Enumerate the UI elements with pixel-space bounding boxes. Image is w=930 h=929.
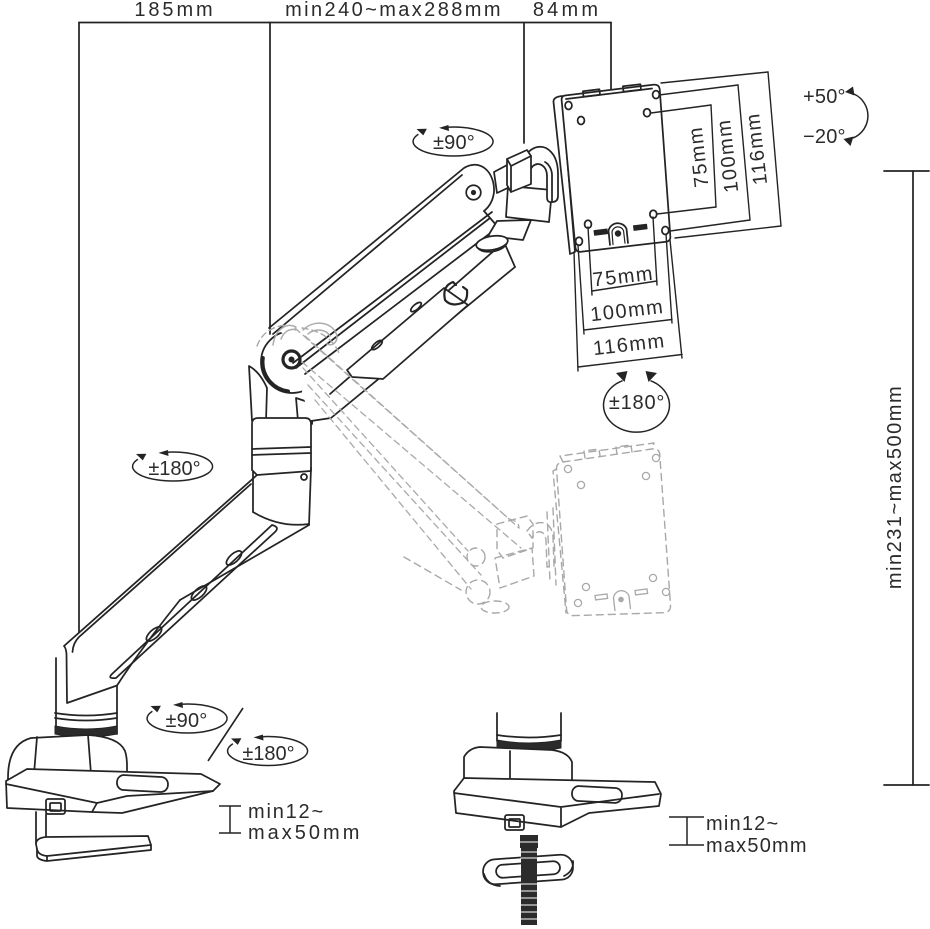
svg-text:min240~max288mm: min240~max288mm <box>285 0 503 21</box>
svg-text:−20°: −20° <box>803 126 846 148</box>
svg-text:min231~max500mm: min231~max500mm <box>884 385 906 589</box>
svg-text:±180°: ±180° <box>242 743 294 765</box>
svg-text:max50mm: max50mm <box>248 822 362 844</box>
svg-text:max50mm: max50mm <box>706 835 808 857</box>
svg-text:±180°: ±180° <box>148 458 200 480</box>
svg-text:min12~: min12~ <box>248 801 325 823</box>
svg-text:min12~: min12~ <box>706 813 779 835</box>
svg-text:±180°: ±180° <box>609 392 665 414</box>
svg-text:±90°: ±90° <box>165 710 207 732</box>
svg-text:±90°: ±90° <box>433 132 475 154</box>
svg-text:+50°: +50° <box>803 86 846 108</box>
svg-text:84mm: 84mm <box>533 0 601 21</box>
svg-text:185mm: 185mm <box>134 0 215 21</box>
